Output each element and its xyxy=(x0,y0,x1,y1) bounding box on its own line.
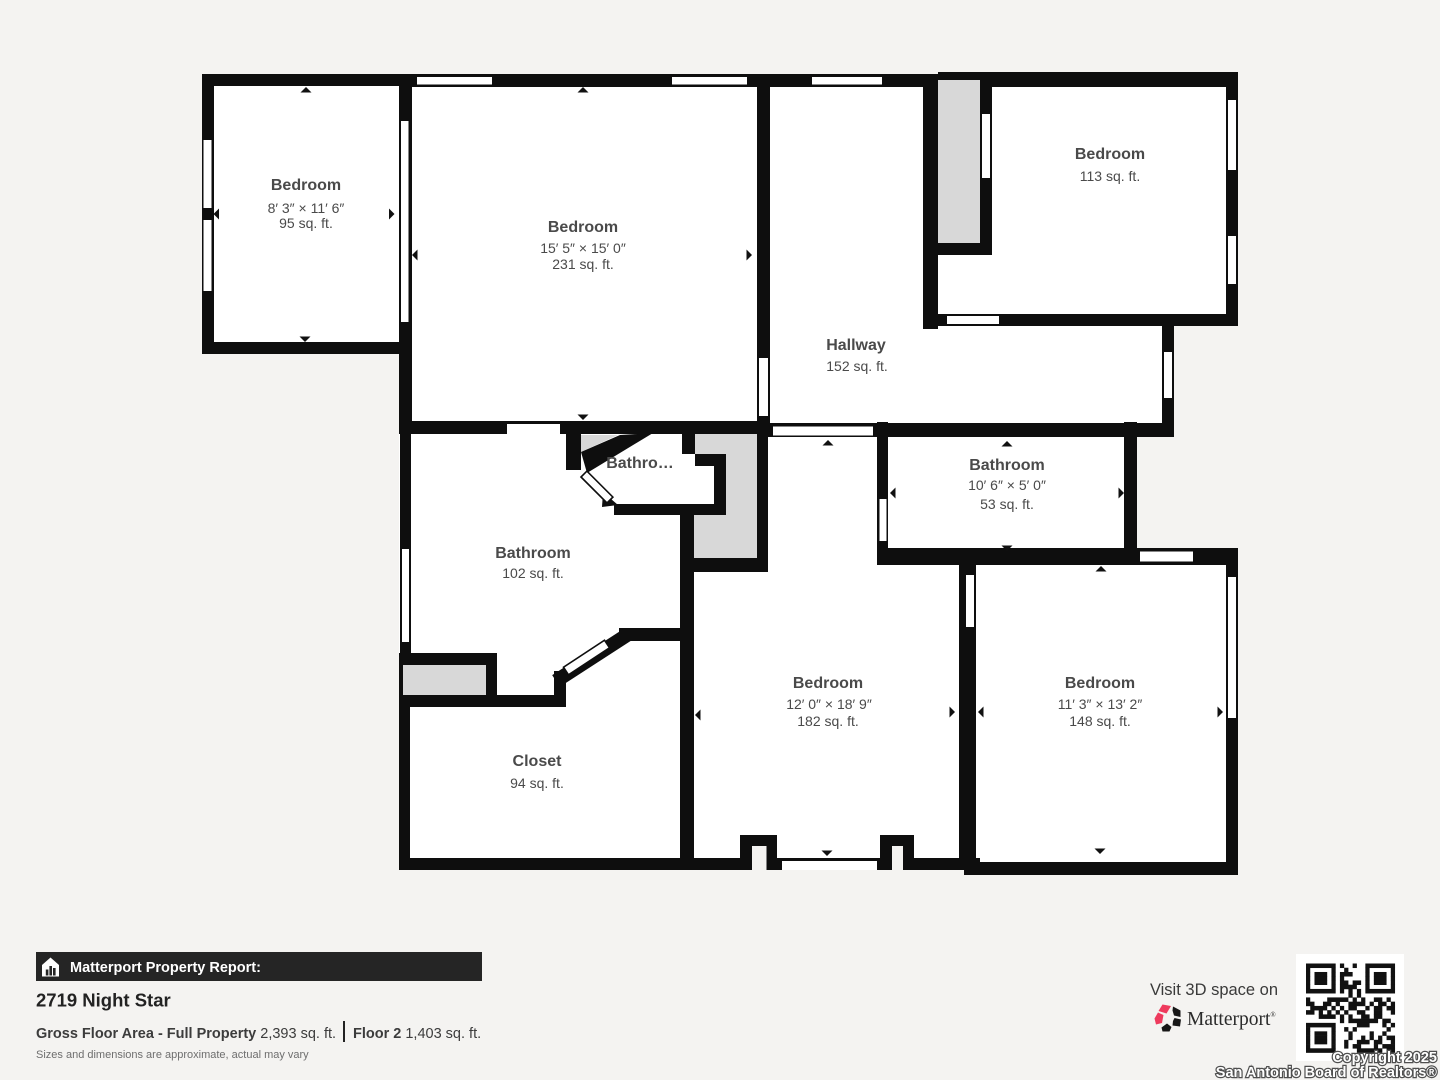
svg-text:Bathroom: Bathroom xyxy=(495,545,571,562)
svg-text:11′ 3″ × 13′ 2″: 11′ 3″ × 13′ 2″ xyxy=(1058,696,1143,712)
svg-text:Bathroom: Bathroom xyxy=(969,457,1045,474)
svg-text:15′ 5″ × 15′ 0″: 15′ 5″ × 15′ 0″ xyxy=(540,240,626,256)
svg-text:2719 Night Star: 2719 Night Star xyxy=(36,990,171,1011)
svg-text:148 sq. ft.: 148 sq. ft. xyxy=(1069,713,1130,729)
svg-text:10′ 6″ × 5′ 0″: 10′ 6″ × 5′ 0″ xyxy=(968,477,1046,493)
svg-text:152 sq. ft.: 152 sq. ft. xyxy=(826,358,887,374)
svg-text:Visit 3D space on: Visit 3D space on xyxy=(1150,981,1278,999)
svg-text:Hallway: Hallway xyxy=(826,337,886,354)
svg-text:Bedroom: Bedroom xyxy=(271,177,341,194)
svg-text:Matterport Property Report:: Matterport Property Report: xyxy=(70,960,261,976)
svg-text:94 sq. ft.: 94 sq. ft. xyxy=(510,775,564,791)
svg-text:Bedroom: Bedroom xyxy=(548,219,618,236)
svg-text:102 sq. ft.: 102 sq. ft. xyxy=(502,565,563,581)
svg-text:Bedroom: Bedroom xyxy=(1075,146,1145,163)
svg-text:Bedroom: Bedroom xyxy=(1065,675,1135,692)
svg-text:Bathro…: Bathro… xyxy=(606,455,674,472)
svg-text:12′ 0″ × 18′ 9″: 12′ 0″ × 18′ 9″ xyxy=(786,696,872,712)
svg-text:Copyright 2025: Copyright 2025 xyxy=(1332,1050,1437,1066)
svg-text:231 sq. ft.: 231 sq. ft. xyxy=(552,256,613,272)
svg-text:Bedroom: Bedroom xyxy=(793,675,863,692)
svg-text:53 sq. ft.: 53 sq. ft. xyxy=(980,496,1034,512)
svg-text:Sizes and dimensions are appro: Sizes and dimensions are approximate, ac… xyxy=(36,1049,309,1061)
svg-text:Matterport®: Matterport® xyxy=(1187,1009,1276,1030)
svg-text:95 sq. ft.: 95 sq. ft. xyxy=(279,215,333,231)
svg-text:8′ 3″ × 11′ 6″: 8′ 3″ × 11′ 6″ xyxy=(268,200,345,216)
svg-text:Floor 2 1,403 sq. ft.: Floor 2 1,403 sq. ft. xyxy=(353,1026,481,1042)
svg-text:182 sq. ft.: 182 sq. ft. xyxy=(797,713,858,729)
svg-text:113 sq. ft.: 113 sq. ft. xyxy=(1080,168,1140,184)
svg-text:Gross Floor Area - Full Proper: Gross Floor Area - Full Property 2,393 s… xyxy=(36,1026,336,1042)
svg-text:Closet: Closet xyxy=(513,753,563,770)
svg-text:San Antonio Board of Realtors®: San Antonio Board of Realtors® xyxy=(1216,1065,1438,1080)
